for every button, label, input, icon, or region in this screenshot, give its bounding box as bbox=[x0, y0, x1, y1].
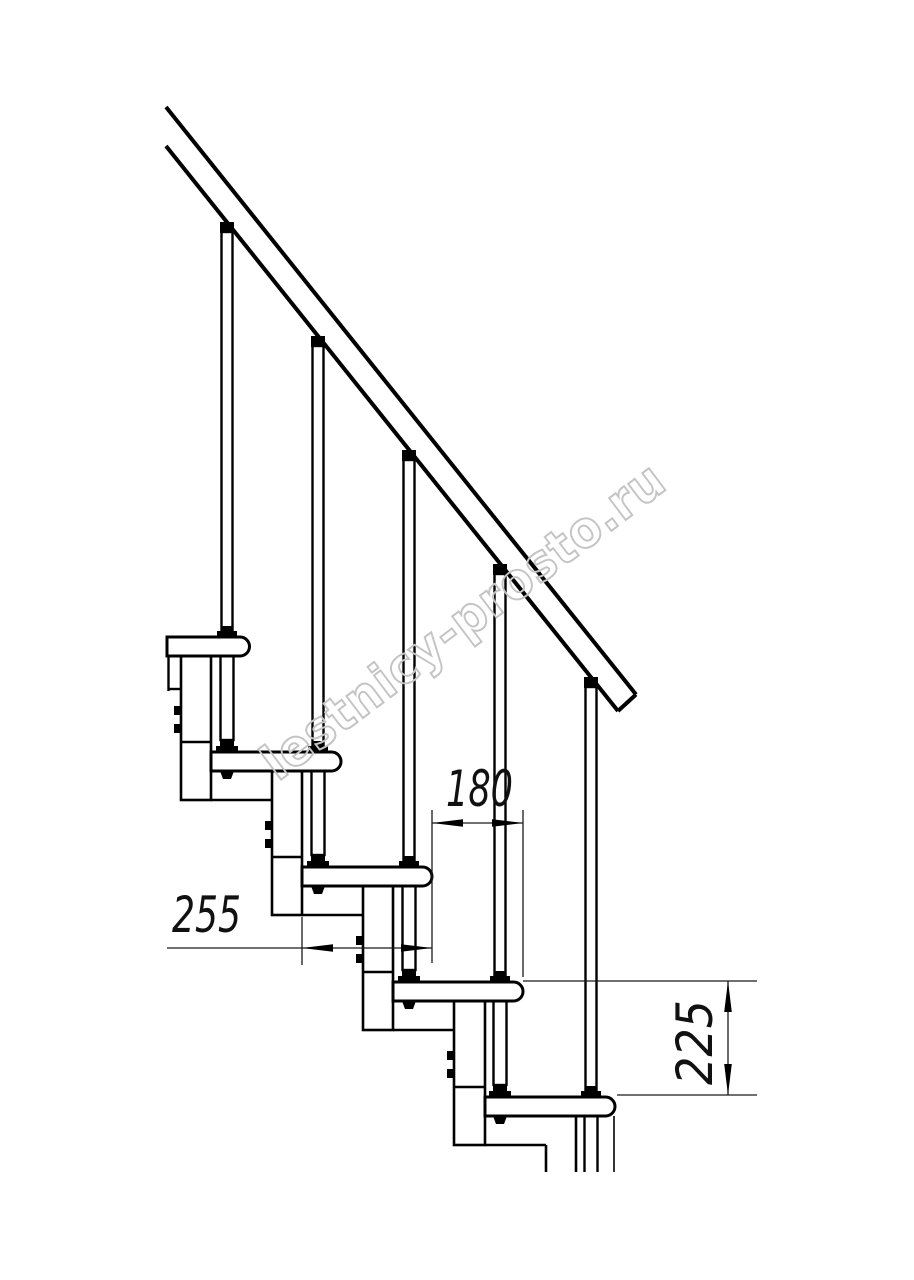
drawing-canvas: 180 255 225 lestnicy-prosto.ru bbox=[0, 0, 914, 1280]
handrail bbox=[166, 107, 636, 711]
arrowhead-up bbox=[724, 981, 732, 1012]
connector-tab bbox=[447, 1051, 454, 1060]
arrowhead-left bbox=[302, 944, 333, 952]
arrowhead-left bbox=[432, 819, 463, 827]
support-leg-3 bbox=[403, 886, 416, 970]
dim-label-255: 255 bbox=[172, 886, 241, 944]
connector-tab bbox=[174, 724, 181, 733]
tread-1 bbox=[167, 637, 250, 656]
support-leg-1 bbox=[221, 656, 234, 740]
connector-tab bbox=[447, 1069, 454, 1078]
riser-column-5-clipped bbox=[546, 1116, 614, 1172]
baluster-1 bbox=[217, 222, 237, 637]
clipped-left-structure bbox=[169, 656, 182, 691]
dim-label-225: 225 bbox=[666, 1000, 724, 1085]
dim-label-180: 180 bbox=[446, 760, 513, 818]
connector-tab bbox=[174, 706, 181, 715]
connector-tab bbox=[265, 821, 272, 830]
arrowhead-right bbox=[492, 819, 523, 827]
support-leg-2 bbox=[312, 771, 325, 855]
support-leg-5-clipped bbox=[585, 1116, 598, 1172]
tread-4 bbox=[393, 982, 523, 1001]
arrowhead-down bbox=[724, 1064, 732, 1095]
tread-3 bbox=[302, 867, 432, 886]
baluster-5 bbox=[581, 677, 601, 1097]
dimension-180: 180 bbox=[432, 760, 523, 977]
connector-tab bbox=[356, 936, 363, 945]
dimension-225: 225 bbox=[523, 981, 757, 1095]
connector-tab bbox=[356, 954, 363, 963]
tread-5 bbox=[485, 1097, 615, 1116]
support-leg-4 bbox=[494, 1001, 507, 1085]
handrail-end-cap bbox=[618, 695, 636, 712]
connector-tab bbox=[265, 839, 272, 848]
staircase-drawing: 180 255 225 lestnicy-prosto.ru bbox=[0, 0, 914, 1280]
